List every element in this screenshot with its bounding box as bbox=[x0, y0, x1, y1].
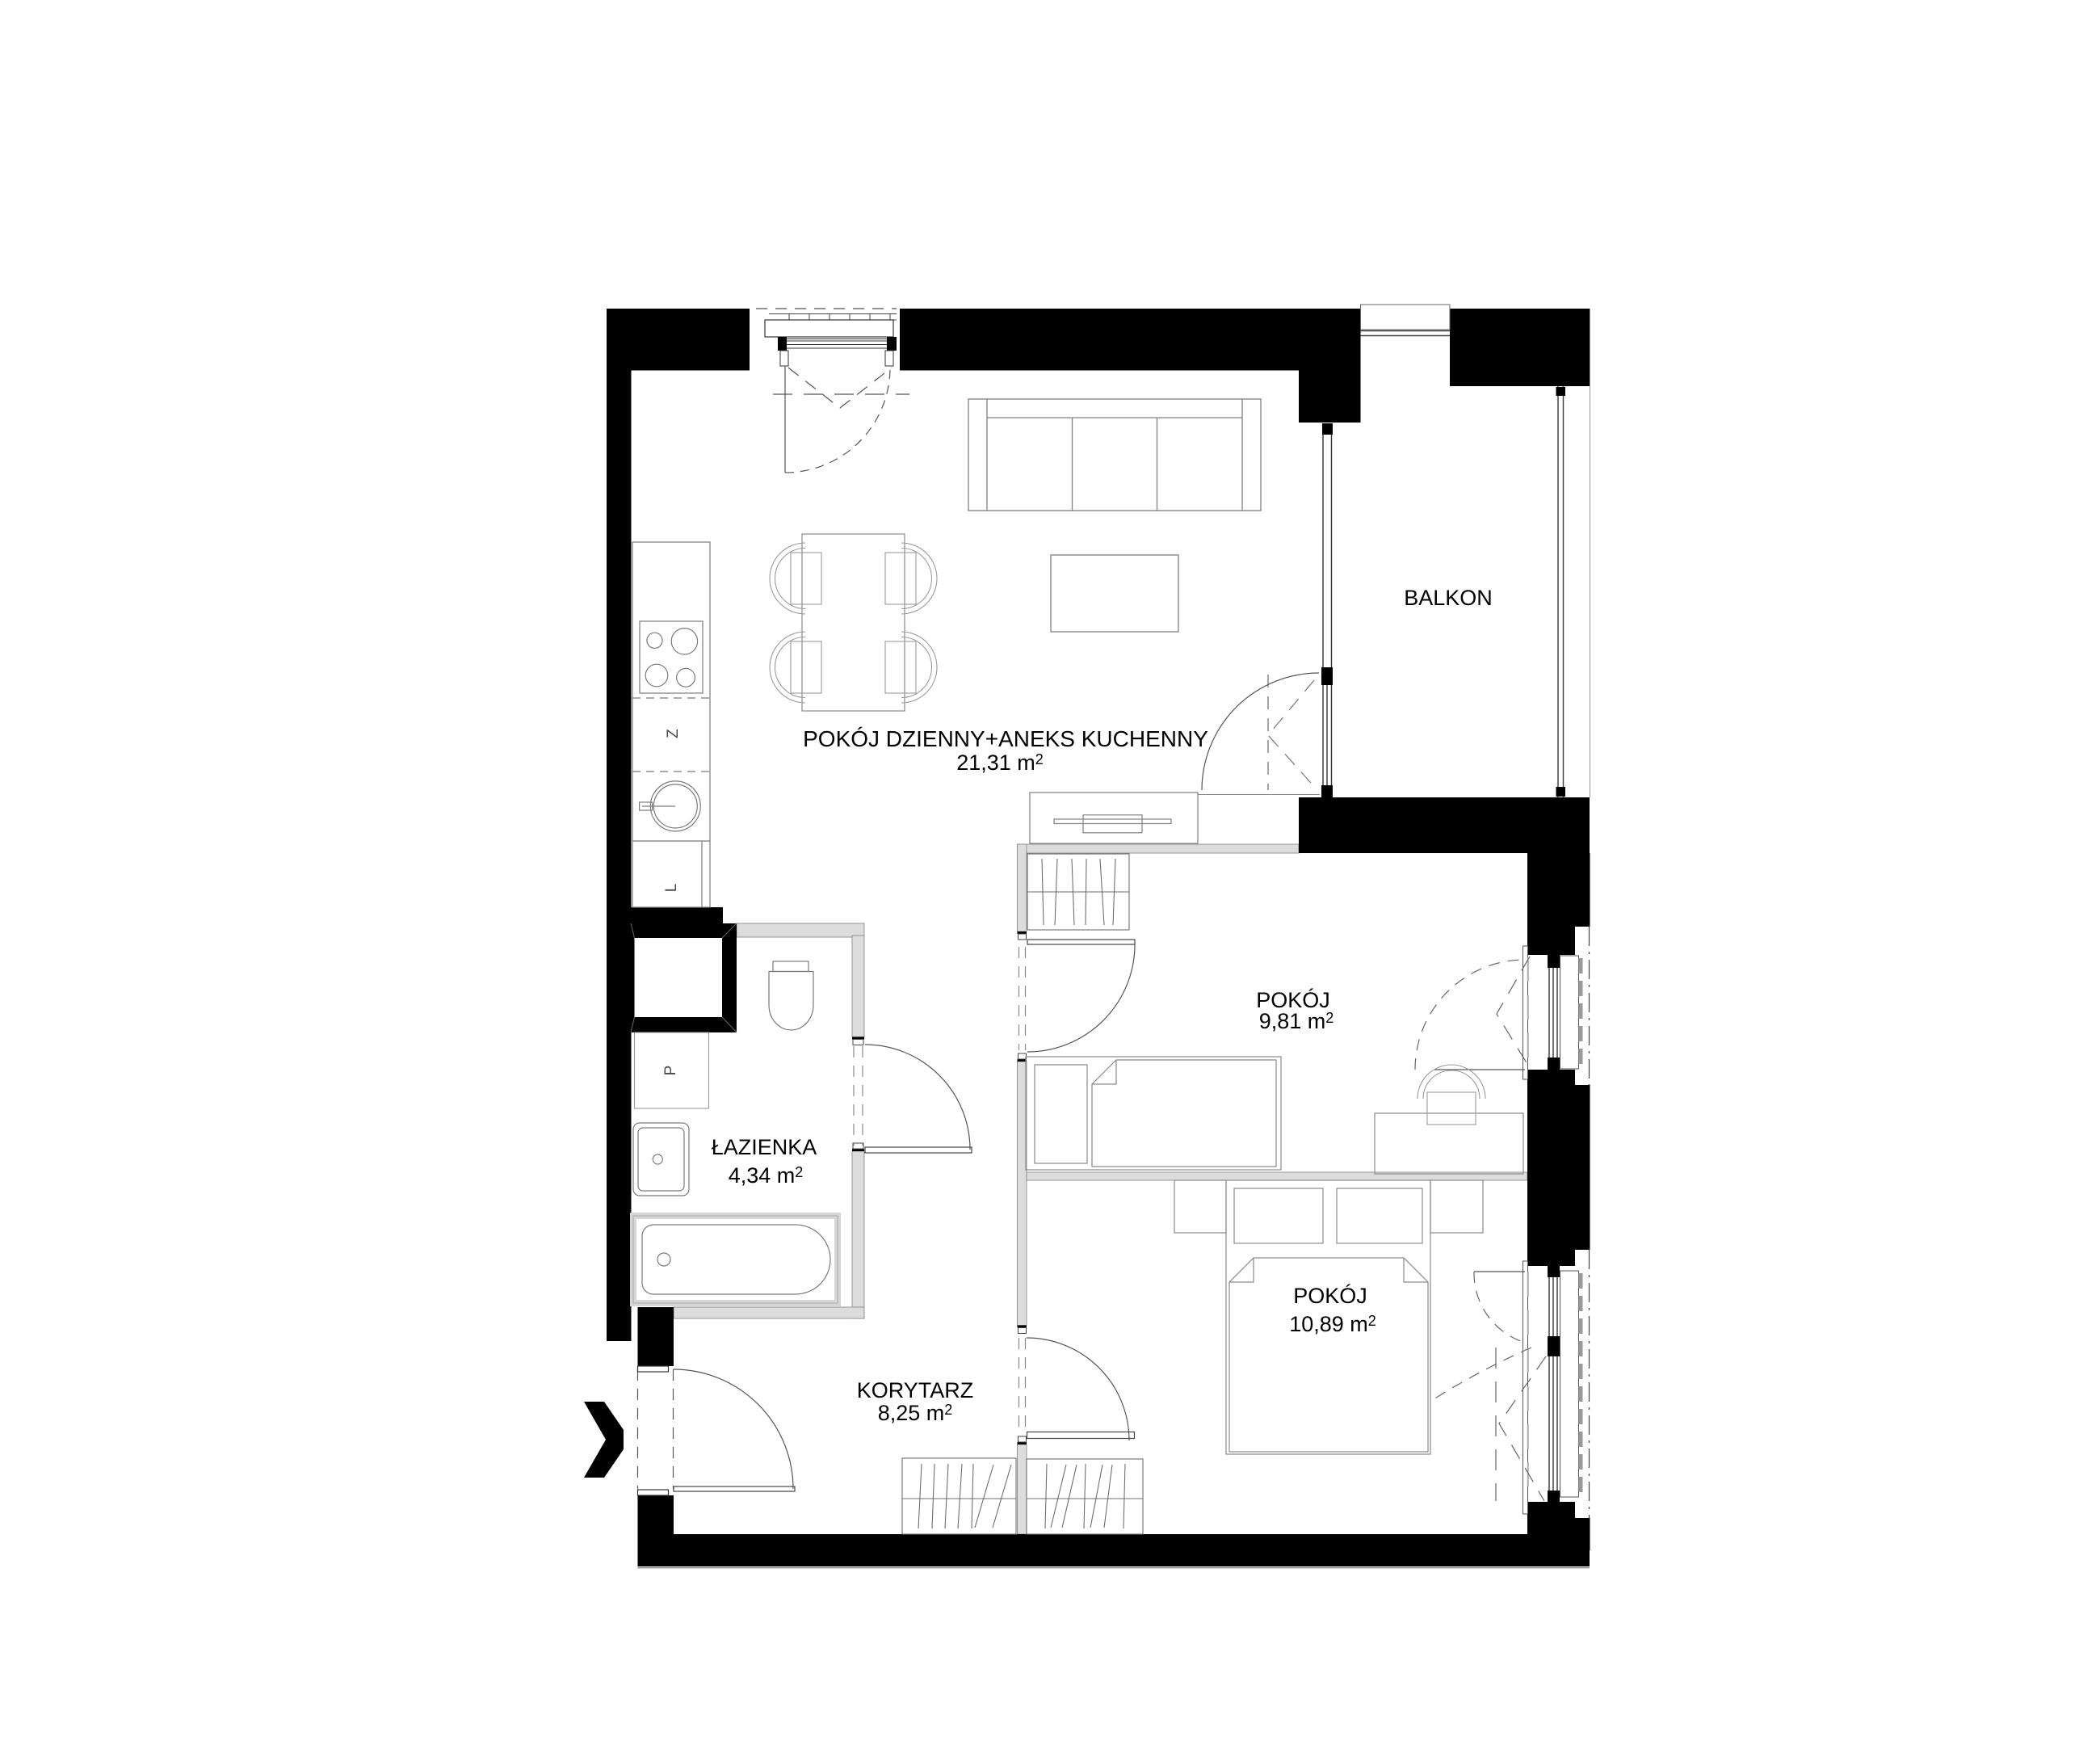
svg-text:ŁAZIENKA: ŁAZIENKA bbox=[712, 1135, 817, 1159]
svg-text:P: P bbox=[662, 1066, 679, 1076]
svg-text:POKÓJ DZIENNY+ANEKS KUCHENNY: POKÓJ DZIENNY+ANEKS KUCHENNY bbox=[803, 726, 1208, 751]
svg-text:10,89 m2: 10,89 m2 bbox=[1289, 1312, 1376, 1336]
svg-text:BALKON: BALKON bbox=[1404, 586, 1493, 610]
svg-text:L: L bbox=[663, 884, 680, 893]
svg-text:Z: Z bbox=[665, 729, 682, 738]
svg-text:21,31 m2: 21,31 m2 bbox=[956, 751, 1044, 775]
svg-text:POKÓJ: POKÓJ bbox=[1293, 1283, 1367, 1308]
svg-text:KORYTARZ: KORYTARZ bbox=[857, 1378, 974, 1402]
svg-text:4,34 m2: 4,34 m2 bbox=[729, 1163, 804, 1188]
svg-text:8,25 m2: 8,25 m2 bbox=[878, 1401, 953, 1425]
svg-text:9,81 m2: 9,81 m2 bbox=[1259, 1009, 1334, 1033]
